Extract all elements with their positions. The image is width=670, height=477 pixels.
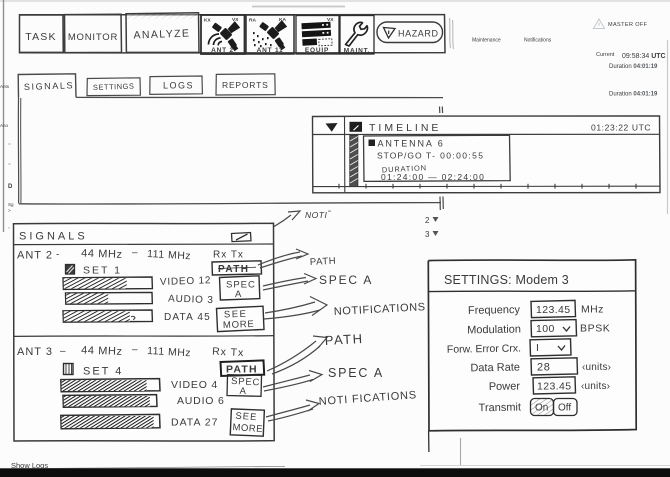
svg-text:100: 100 (536, 323, 555, 335)
svg-text:09:58:34 UTC: 09:58:34 UTC (622, 53, 666, 60)
svg-text:''': ''' (328, 211, 331, 217)
svg-text:ANALYZE: ANALYZE (133, 28, 190, 42)
svg-text:AUDIO 6: AUDIO 6 (177, 395, 225, 407)
svg-text:Current: Current (596, 52, 615, 58)
svg-text:Rx Tx: Rx Tx (212, 346, 245, 360)
svg-text:Off: Off (558, 403, 571, 414)
svg-text:VIDEO 12: VIDEO 12 (160, 275, 212, 288)
svg-text:ANT 2: ANT 2 (17, 250, 53, 262)
svg-text:T- 00:00:55: T- 00:00:55 (426, 151, 484, 161)
svg-text:DATA 45: DATA 45 (164, 312, 211, 323)
svg-text:Duration 04:01:19: Duration 04:01:19 (609, 92, 658, 98)
svg-text:D: D (8, 184, 13, 190)
svg-text:EQUIP: EQUIP (305, 47, 329, 54)
svg-text:SPEC A: SPEC A (328, 366, 384, 380)
svg-text:LOGS: LOGS (163, 81, 194, 91)
svg-text:‹units›: ‹units› (582, 362, 611, 373)
svg-text:Forw. Error Crx.: Forw. Error Crx. (447, 343, 521, 356)
svg-text:NOTI: NOTI (305, 210, 327, 220)
svg-text:DATA 27: DATA 27 (171, 417, 218, 429)
svg-text:RA: RA (249, 18, 256, 24)
svg-text:PATH: PATH (218, 264, 249, 275)
svg-text:On: On (535, 403, 548, 414)
svg-text:Transmit: Transmit (478, 402, 521, 415)
svg-text:ANTENNA 6: ANTENNA 6 (378, 139, 445, 149)
svg-text:SPEC A: SPEC A (319, 273, 373, 287)
svg-text:Ano: Ano (0, 123, 9, 128)
svg-text:Ants: Ants (0, 84, 10, 89)
svg-text:PATH: PATH (324, 331, 363, 348)
svg-text:Duration 04:01:19: Duration 04:01:19 (609, 64, 658, 70)
svg-text:SIGNALS: SIGNALS (24, 80, 75, 92)
svg-text:01:24:00 — 02:24:00: 01:24:00 — 02:24:00 (381, 172, 485, 182)
svg-text:BPSK: BPSK (580, 323, 610, 335)
svg-text:111 MHz: 111 MHz (147, 248, 192, 262)
svg-text:MORE: MORE (232, 422, 263, 435)
svg-text:ANT 11: ANT 11 (257, 47, 284, 54)
svg-text:SET 1: SET 1 (83, 265, 122, 277)
svg-text:SIGNALS: SIGNALS (19, 231, 88, 243)
svg-text:>: > (8, 208, 11, 213)
svg-text:–: – (60, 346, 66, 357)
svg-text:SETTINGS: SETTINGS (93, 82, 135, 92)
svg-text:Data Rate: Data Rate (470, 362, 520, 375)
svg-text:REPORTS: REPORTS (222, 80, 269, 90)
svg-text:PATH: PATH (226, 364, 258, 376)
svg-text:28: 28 (537, 362, 550, 374)
svg-text:Sg: Sg (8, 202, 14, 207)
svg-text:I: I (536, 342, 539, 354)
svg-text:MORE: MORE (223, 319, 255, 331)
svg-text:SETTINGS: Modem 3: SETTINGS: Modem 3 (444, 273, 569, 287)
svg-text:44 MHz: 44 MHz (81, 345, 123, 358)
svg-text:PATH: PATH (310, 256, 337, 268)
svg-text:2: 2 (425, 216, 430, 225)
svg-text:MONITOR: MONITOR (68, 32, 118, 43)
svg-text:Power: Power (489, 380, 521, 393)
svg-text:ANT 2: ANT 2 (211, 47, 234, 54)
svg-text:A: A (235, 289, 242, 300)
svg-text:KX: KX (204, 18, 211, 24)
svg-text:TIMELINE: TIMELINE (369, 122, 441, 134)
svg-text:3: 3 (425, 230, 430, 239)
svg-text:MASTER OFF: MASTER OFF (608, 22, 648, 28)
svg-text:Modulation: Modulation (467, 324, 521, 337)
svg-text:Maintenance: Maintenance (472, 38, 501, 44)
svg-text:ANT 3: ANT 3 (17, 346, 53, 358)
svg-text:Notifications: Notifications (524, 38, 552, 44)
svg-text:01:23:22 UTC: 01:23:22 UTC (591, 123, 651, 133)
svg-text:123.45: 123.45 (536, 304, 571, 316)
svg-text:Frequency: Frequency (468, 304, 521, 317)
svg-text:MAINT.: MAINT. (344, 48, 370, 55)
svg-text:‹units›: ‹units› (581, 381, 610, 392)
svg-text:111 MHz: 111 MHz (147, 345, 192, 359)
svg-text:44 MHz: 44 MHz (81, 248, 123, 261)
svg-text:SET 4: SET 4 (83, 366, 123, 378)
svg-text:VX: VX (232, 17, 239, 23)
svg-text:MHz: MHz (581, 304, 604, 316)
svg-text:123.45: 123.45 (537, 381, 572, 393)
svg-text:–: – (132, 248, 138, 259)
svg-text:–: – (132, 345, 138, 356)
svg-text:HAZARD: HAZARD (398, 29, 439, 39)
svg-text:VIDEO 4: VIDEO 4 (171, 379, 218, 391)
svg-text:AUDIO 3: AUDIO 3 (168, 294, 214, 307)
svg-text:Rx Tx: Rx Tx (213, 250, 244, 261)
svg-text:TASK: TASK (25, 31, 56, 43)
svg-text:STOP/GO: STOP/GO (377, 151, 423, 161)
svg-text:SEE: SEE (235, 411, 258, 424)
svg-text:-: - (56, 250, 59, 261)
